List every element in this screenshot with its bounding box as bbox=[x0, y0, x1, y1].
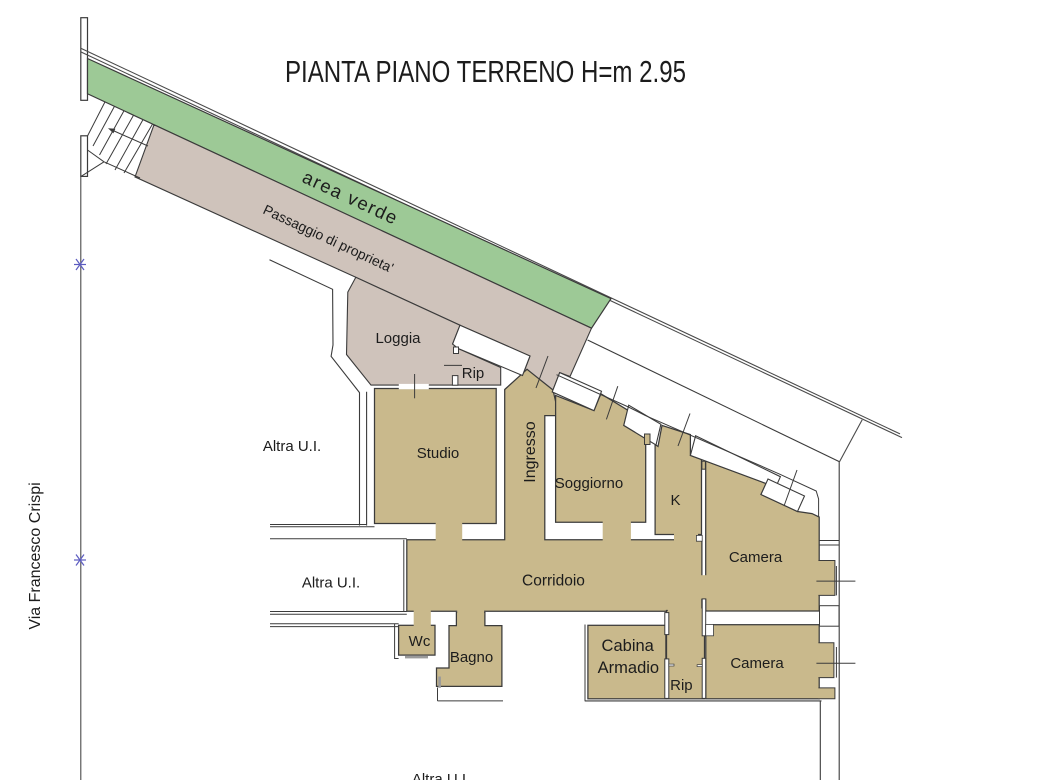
svg-text:Altra U.I.: Altra U.I. bbox=[412, 771, 470, 780]
svg-text:Camera: Camera bbox=[729, 549, 783, 566]
svg-text:Cabina: Cabina bbox=[602, 637, 655, 655]
svg-text:Bagno: Bagno bbox=[450, 649, 493, 666]
svg-text:Corridoio: Corridoio bbox=[522, 573, 585, 590]
svg-text:Studio: Studio bbox=[417, 445, 460, 462]
svg-text:Ingresso: Ingresso bbox=[522, 421, 539, 482]
svg-text:Rip: Rip bbox=[462, 365, 485, 382]
svg-text:Rip: Rip bbox=[670, 677, 693, 694]
svg-text:Camera: Camera bbox=[730, 655, 784, 672]
svg-text:K: K bbox=[670, 492, 680, 509]
svg-text:PIANTA PIANO TERRENO H=m 2.95: PIANTA PIANO TERRENO H=m 2.95 bbox=[285, 54, 686, 89]
svg-text:Wc: Wc bbox=[409, 633, 431, 650]
svg-text:Via Francesco Crispi: Via Francesco Crispi bbox=[27, 482, 44, 629]
svg-text:Loggia: Loggia bbox=[375, 330, 421, 347]
svg-text:Soggiorno: Soggiorno bbox=[555, 475, 623, 492]
svg-text:Altra U.I.: Altra U.I. bbox=[263, 438, 321, 455]
svg-text:Armadio: Armadio bbox=[598, 659, 659, 677]
svg-text:Altra U.I.: Altra U.I. bbox=[302, 575, 360, 592]
